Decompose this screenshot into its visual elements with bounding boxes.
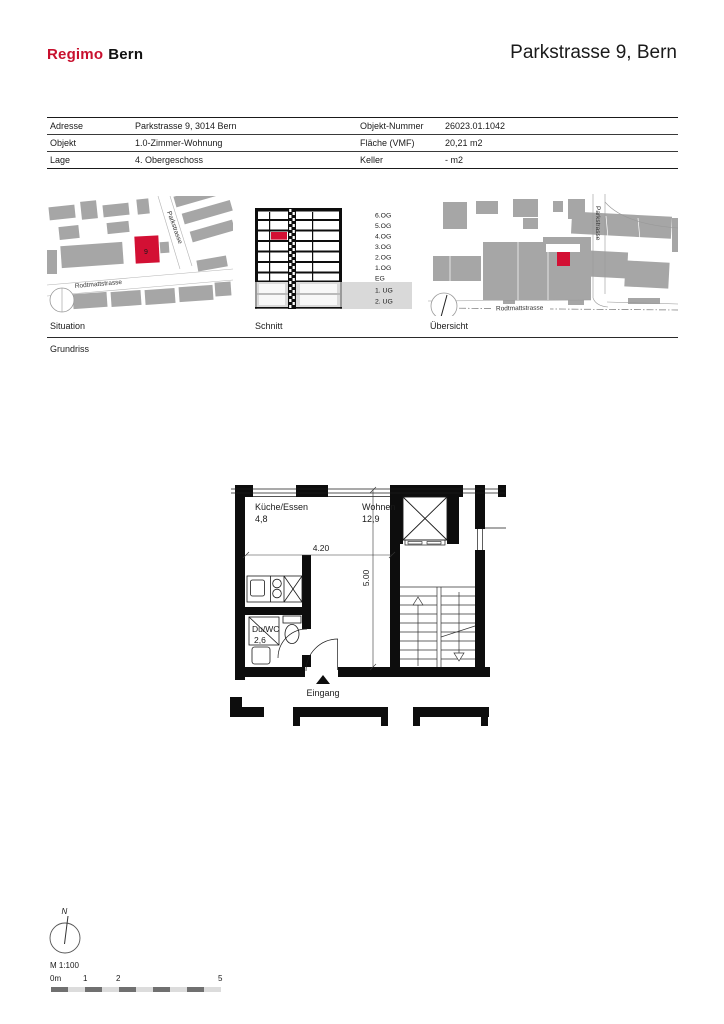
- subject-unit-marker: [271, 232, 287, 240]
- basement-wall: [255, 282, 257, 309]
- floor-labels: 6.OG 5.OG 4.OG 3.OG 2.OG 1.OG EG 1. UG 2…: [375, 213, 393, 306]
- overview-map: Parkstrasse Rodtmattstrasse: [428, 194, 678, 316]
- scale-bar-segment: [187, 987, 204, 992]
- company-logo: RegimoBern: [47, 46, 143, 63]
- scale-tick: 1: [83, 974, 87, 983]
- page-title: Parkstrasse 9, Bern: [510, 42, 677, 64]
- logo-primary: Regimo: [47, 46, 103, 63]
- row-value: 4. Obergeschoss: [135, 155, 360, 165]
- entrance-marker-triangle: [316, 675, 330, 684]
- sink: [251, 580, 265, 596]
- street-label-rodtmattstrasse: Rodtmattstrasse: [75, 279, 123, 290]
- street-centerline: [434, 308, 678, 310]
- floor-label: 5.OG: [375, 223, 391, 230]
- stove-burner: [273, 589, 282, 598]
- room-name: Du/WC: [252, 624, 279, 634]
- floor-label: 4.OG: [375, 234, 391, 241]
- floor-label: 6.OG: [375, 213, 391, 220]
- toilet-bowl: [285, 625, 299, 644]
- row-label: Objekt-Nummer: [360, 121, 445, 131]
- row-label: Objekt: [47, 138, 135, 148]
- floor-label: EG: [375, 276, 385, 283]
- row-value: Parkstrasse 9, 3014 Bern: [135, 121, 360, 131]
- staircase: [400, 587, 475, 667]
- scale-bar: [51, 987, 221, 992]
- scale-bar-segment: [85, 987, 102, 992]
- basement-slab: [255, 294, 342, 295]
- row-value: 1.0-Zimmer-Wohnung: [135, 138, 360, 148]
- entrance-label: Eingang: [306, 688, 339, 698]
- scale-tick: 0m: [50, 974, 61, 983]
- scale-bar-segment: [153, 987, 170, 992]
- caption-situation: Situation: [50, 321, 85, 331]
- stove-burner: [273, 579, 282, 588]
- room-name: Küche/Essen: [255, 502, 308, 512]
- row-label: Lage: [47, 155, 135, 165]
- floor-label: 2.OG: [375, 255, 391, 262]
- logo-secondary: Bern: [108, 46, 143, 63]
- floor-label: 1. UG: [375, 288, 393, 295]
- toilet-tank: [283, 616, 301, 623]
- street-label-rodtmattstrasse: Rodtmattstrasse: [496, 305, 544, 313]
- scale-tick: 5: [218, 974, 222, 983]
- room-area: 4,8: [255, 514, 268, 524]
- courtyard-notch: [546, 244, 580, 252]
- street-label-parkstrasse: Parkstrasse: [594, 206, 601, 241]
- floorplan-drawing: Küche/Essen 4,8 Wohnen 12,9 Du/WC 2,6 4.…: [228, 470, 508, 732]
- caption-schnitt: Schnitt: [255, 321, 283, 331]
- basement-wall: [340, 282, 342, 309]
- row-value: - m2: [445, 155, 678, 165]
- caption-uebersicht: Übersicht: [430, 321, 468, 331]
- washbasin: [252, 647, 270, 664]
- room-area: 2,6: [254, 635, 266, 645]
- caption-grundriss: Grundriss: [50, 344, 89, 354]
- north-label: N: [62, 907, 68, 916]
- scale-label: M 1:100: [50, 961, 79, 970]
- stairs-up-arrow: [413, 597, 423, 605]
- situation-map: 9 Parkstrasse Rodtmattstrasse: [47, 196, 233, 314]
- section-divider: [47, 337, 678, 338]
- north-compass: N: [40, 902, 96, 958]
- elevator-shaft: [403, 497, 447, 545]
- stairs-break-line: [441, 626, 475, 637]
- stairs-down-arrow: [454, 653, 464, 661]
- row-label: Fläche (VMF): [360, 138, 445, 148]
- row-value: 20,21 m2: [445, 138, 678, 148]
- floor-label: 3.OG: [375, 244, 391, 251]
- scale-bar-segment: [51, 987, 68, 992]
- table-row: Adresse Parkstrasse 9, 3014 Bern Objekt-…: [47, 118, 678, 135]
- floor-label: 2. UG: [375, 299, 393, 306]
- kitchen-counter: [247, 576, 302, 602]
- row-label: Adresse: [47, 121, 135, 131]
- row-label: Keller: [360, 155, 445, 165]
- room-name: Wohnen: [362, 502, 395, 512]
- overview-buildings: [433, 199, 678, 306]
- neighbor-walls: [230, 697, 489, 726]
- dimension-width: 4.20: [313, 543, 330, 553]
- compass-needle: [65, 916, 69, 944]
- scale-tick: 2: [116, 974, 120, 983]
- subject-building-marker: [557, 252, 570, 266]
- row-value: 26023.01.1042: [445, 121, 678, 131]
- building-number-label: 9: [144, 249, 148, 256]
- dimension-height: 5.00: [361, 569, 371, 586]
- room-area: 12,9: [362, 514, 380, 524]
- table-row: Lage 4. Obergeschoss Keller - m2: [47, 152, 678, 169]
- scale-bar-segment: [119, 987, 136, 992]
- floor-label: 1.OG: [375, 265, 391, 272]
- section-drawing: 6.OG 5.OG 4.OG 3.OG 2.OG 1.OG EG 1. UG 2…: [253, 200, 413, 315]
- table-row: Objekt 1.0-Zimmer-Wohnung Fläche (VMF) 2…: [47, 135, 678, 152]
- object-info-table: Adresse Parkstrasse 9, 3014 Bern Objekt-…: [47, 117, 678, 169]
